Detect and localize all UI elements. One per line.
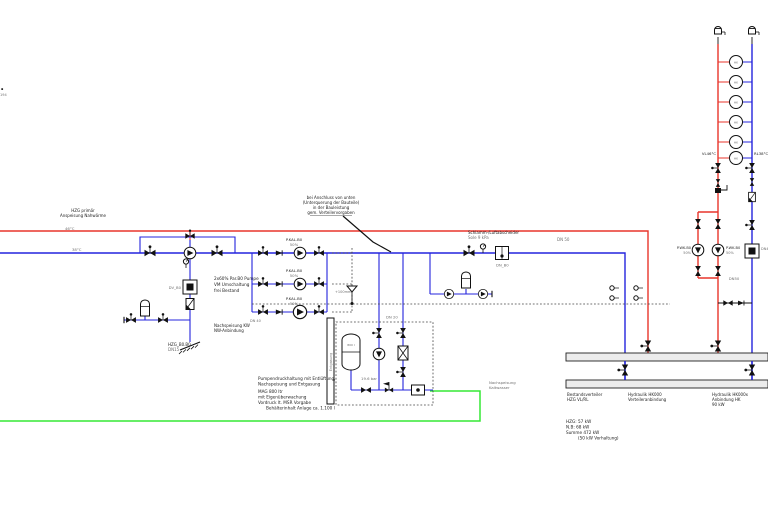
dn20-label: DN 20 (386, 315, 398, 320)
valve-icon (314, 246, 324, 256)
strainer-icon (186, 299, 194, 310)
riser-vl-label: VL46°C (702, 151, 716, 156)
control-valve-icon (183, 280, 197, 294)
mixer-note: frei Bestand (214, 288, 240, 293)
pump-icon (294, 278, 306, 290)
riser-pump-pct: 50% (683, 251, 691, 255)
valve-icon (744, 365, 755, 376)
pipe-dn-label: DN 50 (557, 237, 570, 242)
parallel-pump-symbols (258, 246, 357, 319)
valve-icon (716, 179, 720, 187)
pump-icon (444, 289, 453, 298)
check-valve-icon (276, 309, 282, 314)
valve-icon (640, 341, 651, 352)
pump-icon (293, 305, 306, 318)
fitting-icon (715, 188, 721, 193)
unit-note: Behälterinhalt Anlage ca. 1.100 l (266, 406, 335, 411)
pump-icon (373, 348, 385, 360)
valve-icon (695, 266, 701, 276)
air-dirt-separator-icon (496, 247, 509, 260)
riser-symbols (692, 27, 759, 306)
temperature-sensor-icon (634, 296, 643, 300)
unit-note: Vordruck lt. MSR Vorgabe (258, 400, 311, 405)
valve-icon (145, 245, 156, 256)
valve-icon (711, 163, 721, 173)
column-label: Entgasung (329, 353, 333, 372)
pressure-unit-symbols (327, 318, 425, 404)
temperature-sensor-icon (610, 296, 619, 300)
pump-pct: 50% (290, 242, 299, 247)
valve-icon (745, 163, 755, 173)
valve-icon (158, 313, 168, 323)
return-blue-main-line (0, 253, 625, 380)
control-valve-icon (745, 244, 759, 258)
valve-icon (372, 328, 382, 338)
fill-unit-icon (412, 385, 425, 395)
unit-note: Pumpendruckhaltung mit Entlüftung, (258, 376, 335, 381)
callout-line: gem. Verteilervorgaben (307, 210, 355, 215)
header-label: HZG VL/RL (567, 397, 589, 402)
thermometer-icon (480, 244, 485, 253)
pump-icon (184, 247, 196, 259)
unit-note: mit Eigenüberwachung (258, 395, 307, 400)
mixer-note: 2x60% Par.B0 Pumpe (214, 276, 259, 281)
valve-icon (314, 305, 324, 315)
schematic-canvas: ▪ 194 HZG primär Anspeisung Nahwärme 46°… (0, 0, 768, 512)
valve-icon (715, 219, 721, 229)
pressure-reducer-icon (396, 367, 406, 377)
hvac-piping-schematic: ▪ 194 HZG primär Anspeisung Nahwärme 46°… (0, 0, 768, 512)
riser-dn-label: DN50 (729, 276, 740, 281)
pump-pct: 50% (290, 273, 299, 278)
distributor-header-return-bar (566, 380, 768, 388)
check-valve-icon (276, 250, 282, 255)
offset-label: +100mm (335, 290, 352, 294)
air-vent-icon (749, 27, 760, 45)
pump-icon (478, 289, 487, 298)
load-summary: Summe 472 kW (566, 430, 599, 435)
riser-pump-tag: P.WK.B0 (726, 246, 740, 250)
valve-icon (361, 387, 371, 393)
valve-icon (314, 277, 324, 287)
callout-leader-line (343, 216, 391, 252)
pump-pct: 50% (290, 301, 299, 306)
margin-note: ▪ (1, 87, 4, 91)
pump-icon (692, 244, 704, 256)
air-vent-icon (715, 27, 726, 45)
valve-icon (258, 246, 268, 256)
temperature-sensor-icon (634, 286, 643, 290)
valve-icon (710, 341, 721, 352)
check-valve-icon (738, 300, 744, 305)
dv-tag: DV_B0 (169, 285, 182, 290)
safety-pressure-label: 19.6 bar (361, 376, 377, 381)
header-label: Verteileranbindung (628, 397, 667, 402)
unit-note: Nachspeisung und Entgasung (258, 382, 321, 387)
separator-label: Sole 9 kPa (468, 235, 489, 240)
riser-rl-label: RL38°C (754, 151, 768, 156)
riser-pump-pct: 50% (726, 251, 734, 255)
filter-icon (398, 346, 408, 360)
separator-assembly-symbols (464, 244, 509, 260)
return-temp-label: 38°C (72, 247, 82, 252)
pressure-unit-pipes (351, 253, 433, 390)
riser-pump-tag: P.WK.B0 (677, 246, 691, 250)
feed-label: Anspeisung Nahwärme (60, 213, 107, 218)
valve-icon (396, 328, 406, 338)
pump-icon (294, 247, 306, 259)
distributor-header-supply-bar (566, 353, 768, 361)
pump-icon (712, 244, 724, 256)
load-summary: HZG: 57 kW (566, 419, 591, 424)
thermometer-icon (183, 259, 188, 268)
valve-icon (750, 178, 754, 186)
refill-degassing-symbols (444, 272, 492, 299)
valve-icon (126, 313, 136, 323)
supply-red-riser-group (698, 44, 729, 353)
pipe-dn-label: DN 40 (250, 319, 261, 323)
expansion-vessel-icon (141, 300, 150, 316)
valve-icon (745, 220, 755, 230)
pipe-tag: DN15 (168, 347, 180, 352)
supply-temp-label: 46°C (65, 226, 75, 231)
valve-icon (715, 266, 721, 276)
unit-note: MAG 800 ltr (258, 389, 283, 394)
vessel-size-label: 800 l (347, 343, 355, 347)
valve-icon (258, 305, 268, 315)
riser-dn-label: DN40 (761, 247, 768, 251)
margin-note: 194 (0, 93, 7, 97)
green-fill-line (0, 391, 480, 421)
mixer-note: VM Umschaltung (214, 282, 250, 287)
supply-red-main-line (0, 231, 648, 353)
strainer-icon (749, 192, 756, 201)
refill-note: NW-Anbindung (214, 328, 244, 333)
valve-icon (695, 219, 701, 229)
return-blue-riser (743, 44, 753, 380)
header-symbols (610, 286, 755, 376)
pressure-transducer-icon (347, 286, 357, 305)
valve-icon (617, 365, 628, 376)
temperature-sensor-icon (610, 286, 619, 290)
valve-icon (464, 245, 475, 256)
check-valve-icon (276, 281, 282, 286)
header-label: 90 kW (712, 402, 725, 407)
separator-dn: DN_B0 (496, 263, 509, 268)
mag-expansion-vessel-icon (342, 334, 360, 370)
vent-stub-icon (721, 185, 727, 190)
load-summary: N.B: 68 kW (566, 425, 589, 430)
vessel-icon (462, 272, 471, 288)
green-line-label: Kaltwasser (489, 385, 510, 390)
valve-icon (258, 277, 268, 287)
load-summary: (50 kW Vorhaltung) (578, 436, 619, 441)
mixer-symbols (124, 230, 223, 354)
valve-icon (212, 245, 223, 256)
